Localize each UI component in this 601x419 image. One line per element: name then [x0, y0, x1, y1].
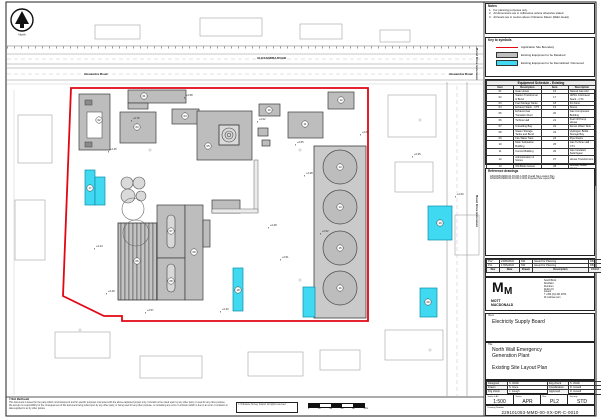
road-label: Alexandra Road — [84, 72, 108, 76]
context-building — [395, 162, 433, 192]
spot-level: +2.60 — [457, 192, 464, 196]
demolished-equipment — [303, 287, 315, 317]
compound-detail — [87, 112, 102, 138]
revision-table: PL224/06/2022SWIssued for PlanningRBDHPL… — [486, 259, 601, 273]
revision-box: PL224/06/2022SWIssued for PlanningRBDHPL… — [485, 258, 595, 277]
spot-level: +2.63 — [362, 130, 369, 134]
os-credit-box: © Ordnance Survey Ireland. All rights re… — [236, 402, 298, 413]
item-marker-number: 20 — [426, 300, 430, 304]
item-marker-number: 13 — [338, 165, 342, 169]
drawing-number-value: 229101053-MMD-00-XX-DR-C-0010 — [486, 410, 594, 415]
title-box: Title North Wall Emergency Generation Pl… — [485, 342, 595, 380]
equipment-row: 05Exhaust Gas Transition Duct20Gas Compr… — [487, 110, 596, 117]
context-building — [248, 352, 303, 376]
project-title: North Wall Emergency Generation Plant — [486, 346, 594, 360]
transformer — [85, 100, 92, 105]
retained-building — [203, 220, 210, 247]
small-tank — [121, 177, 133, 189]
item-marker-number: 16 — [338, 286, 342, 290]
spot-level: +2.52 — [322, 229, 329, 233]
item-marker-number: 19 — [438, 221, 442, 225]
item-marker-number: 10 — [267, 108, 271, 112]
revision-header: RevDateDrawnDescriptionCh'k'dApp'd — [487, 268, 601, 272]
equipment-row: 10Main Substation Building25Gas Turbine … — [487, 141, 596, 148]
spot-level: +2.55 — [297, 140, 304, 144]
road-label: Alexandra Road — [449, 72, 473, 76]
key-item: Existing Equipment to be Demolished / Re… — [496, 60, 594, 66]
spot-level: +2.51 — [282, 255, 289, 259]
credits-table: DesignedS. WebbEng checkS. WebbDrawnS. H… — [486, 381, 601, 395]
item-marker-number: 15 — [338, 246, 342, 250]
footer-disclaimer: © Mott MacDonald This document is issued… — [9, 399, 231, 410]
firm-address-line: W mottmac.com — [544, 297, 566, 300]
context-building — [388, 95, 436, 137]
item-marker-number: 04 — [183, 114, 187, 118]
key-box: Key to symbols Application Site Boundary… — [485, 37, 595, 77]
demolished-equipment — [95, 177, 105, 205]
firm-logo-icon-2: M — [504, 286, 512, 297]
key-title: Key to symbols — [486, 38, 594, 43]
context-building — [300, 24, 342, 39]
scale-label: Scale at A1 — [488, 396, 499, 398]
credits-box: DesignedS. WebbEng checkS. WebbDrawnS. H… — [485, 380, 595, 394]
context-building — [55, 332, 110, 358]
item-marker-number: 14 — [338, 205, 342, 209]
security-cell: Security STD — [567, 395, 596, 404]
context-building — [140, 356, 202, 378]
item-marker-number: 08 — [169, 279, 173, 283]
client-box: Client Electricity Supply Board — [485, 313, 595, 342]
cyan-fill-swatch — [496, 60, 518, 66]
status-label: Status — [516, 396, 522, 398]
item-marker-number: 01 — [142, 94, 146, 98]
spot-level: +2.49 — [108, 289, 115, 293]
drawing-sheet: Alexandra RoadAlexandra RoadALEXANDRA RO… — [0, 0, 601, 419]
key-item: Application Site Boundary — [496, 45, 594, 49]
client-name: Electricity Supply Board — [486, 317, 594, 325]
spot-level: +2.76 — [133, 116, 140, 120]
north-label: North — [18, 33, 26, 37]
grey-fill-swatch — [496, 52, 518, 58]
context-building — [320, 350, 360, 370]
drawing-number-label: Drawing Number — [488, 407, 504, 409]
firm-box: M M MOTT MACDONALD South BlockRockfieldD… — [485, 277, 595, 311]
firm-logo-icon: M — [492, 279, 504, 295]
item-marker-number: 17 — [88, 186, 92, 190]
retained-building — [128, 90, 186, 103]
reference-drawings-box: Reference drawings 229101053-MMD-00-XX-D… — [485, 168, 595, 256]
security-label: Security — [570, 396, 578, 398]
retained-building — [258, 128, 268, 136]
rev-cell: Rev PL2 — [540, 395, 568, 404]
small-tank — [136, 191, 146, 201]
spot-level: +2.38 — [306, 171, 313, 175]
footer-disclaimer-lines: This document is issued for the party wh… — [9, 402, 231, 411]
spot-level: +2.35 — [414, 152, 421, 156]
spot-level: +2.44 — [96, 244, 103, 248]
key-list: Application Site BoundaryExisting Equipm… — [486, 45, 594, 66]
spot-level: +2.57 — [147, 308, 154, 312]
firm-address: South BlockRockfieldDundrumDublin 16Irel… — [544, 280, 566, 300]
item-marker-number: 05 — [206, 144, 210, 148]
reference-drawing: 229101053-MMD-00-XX-DR-C-0011 Proposed S… — [490, 178, 594, 181]
pipe-rack — [254, 160, 258, 212]
equipment-row: 08Steam Storage Tanks and Bund23Hydrogen… — [487, 129, 596, 136]
retained-building — [262, 140, 270, 146]
notes-list: 1.For planning purposes only.2.All dimen… — [486, 9, 594, 20]
equipment-row: 02Station Transformer & Bund17HRSG & Exh… — [487, 94, 596, 101]
item-marker-number: 03 — [135, 125, 139, 129]
item-marker-number: 12 — [339, 98, 343, 102]
road-label: Bond Drive Extension — [475, 195, 479, 227]
red-line-swatch — [496, 47, 518, 48]
pipe-rack — [212, 209, 258, 213]
rev-label: Rev — [543, 396, 547, 398]
equipment-row: 11Control Building26Gas Insulated Switch… — [487, 148, 596, 155]
drawing-title: Existing Site Layout Plan — [486, 360, 594, 371]
item-marker-number: 09 — [192, 250, 196, 254]
item-marker-number: 07 — [169, 229, 173, 233]
context-building — [385, 330, 443, 360]
equipment-schedule-box: Equipment Schedule - ExistingItemDescrip… — [485, 79, 595, 165]
road-label: Bond Drive Extension — [475, 48, 479, 80]
context-building — [200, 18, 262, 36]
firm-name: MOTT MACDONALD — [491, 299, 513, 307]
spot-level: +2.58 — [186, 93, 193, 97]
spot-level: +2.40 — [222, 307, 229, 311]
item-marker-number: 11 — [304, 122, 307, 126]
scalebar: 01020304050m — [308, 403, 370, 413]
drawing-number-box: Drawing Number 229101053-MMD-00-XX-DR-C-… — [485, 405, 595, 416]
equipment-row: 06Turbine Hall21Fuel Oil Pump House — [487, 117, 596, 124]
status-cell: Status APR — [513, 395, 541, 404]
os-credit-text: © Ordnance Survey Ireland. All rights re… — [238, 404, 286, 406]
context-building — [18, 115, 52, 163]
item-marker-number: 18 — [236, 288, 240, 292]
spot-level: +2.62 — [259, 117, 266, 121]
retained-building — [128, 103, 148, 109]
context-building — [15, 200, 45, 260]
spot-level: +2.45 — [110, 147, 117, 151]
spot-level: +2.48 — [270, 223, 277, 227]
key-item: Existing Equipment to be Retained — [496, 52, 594, 58]
note-item: 3.All levels are in metres above Ordnanc… — [486, 16, 594, 20]
context-building — [95, 25, 140, 39]
equipment-row: 12Administration & Stores27House Transfo… — [487, 156, 596, 163]
context-building — [380, 30, 410, 42]
item-marker-number: 06 — [135, 259, 139, 263]
reference-drawings-list: 229101053-MMD-00-XX-DR-C-0005 Overall Si… — [486, 174, 594, 182]
small-tank — [133, 177, 145, 189]
item-marker-number: 02 — [97, 118, 101, 122]
issue-box: Scale at A1 1:500 Status APR Rev PL2 Sec… — [485, 394, 595, 405]
disclaimer-line: We accept no responsibility for the cons… — [9, 405, 231, 411]
notes-box: Notes 1.For planning purposes only.2.All… — [485, 3, 595, 34]
road-label: ALEXANDRA ROAD — [257, 56, 287, 60]
scale-cell: Scale at A1 1:500 — [486, 395, 513, 404]
transformer — [85, 142, 92, 147]
small-tank — [121, 189, 135, 203]
